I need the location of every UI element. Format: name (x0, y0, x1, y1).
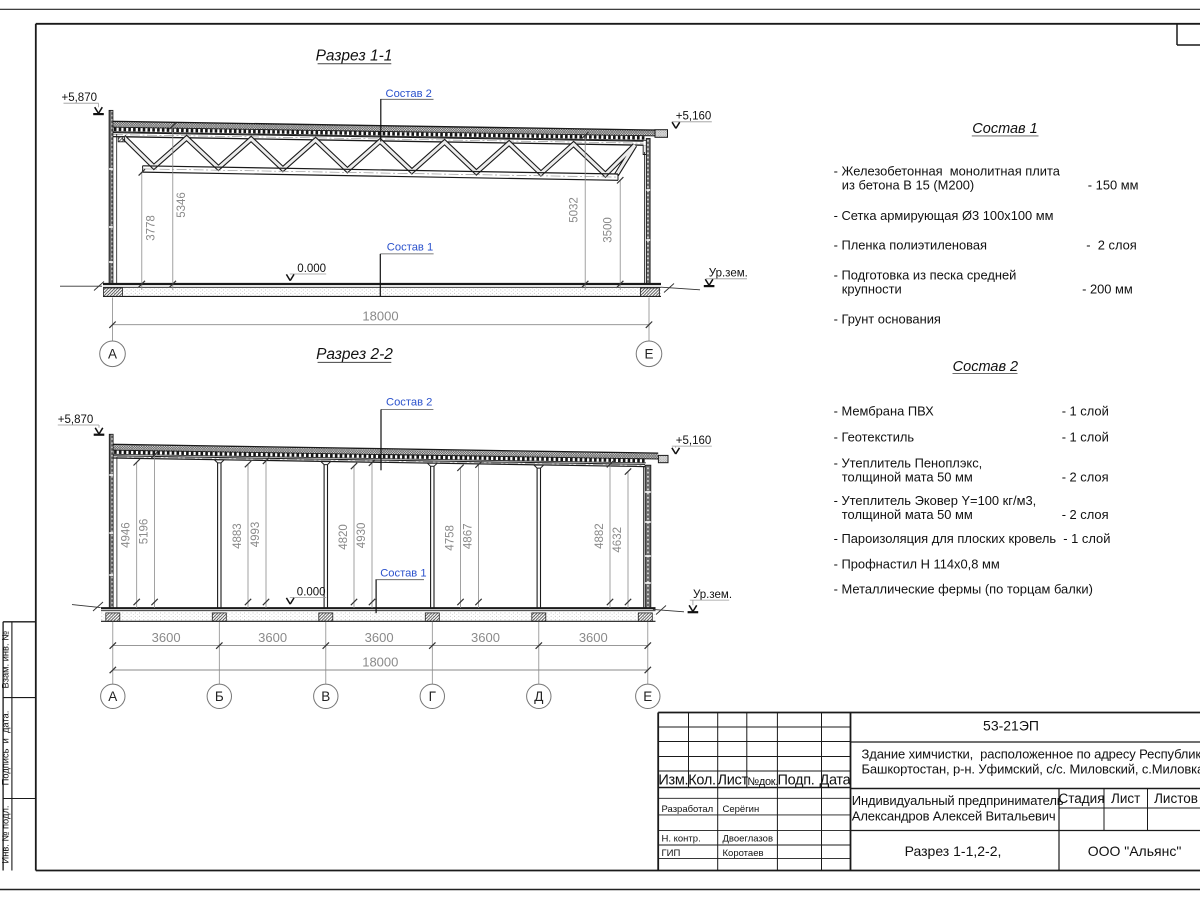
svg-text:Серёгин: Серёгин (723, 804, 760, 815)
svg-text:- 2 слоя: - 2 слоя (1086, 238, 1136, 253)
svg-text:3600: 3600 (258, 630, 287, 645)
svg-text:№док.: №док. (747, 776, 778, 788)
svg-text:Б: Б (215, 689, 224, 704)
svg-text:- Утеплитель Пеноплэкс,: - Утеплитель Пеноплэкс, (834, 456, 983, 471)
svg-text:+5,870: +5,870 (58, 414, 94, 426)
svg-text:толщиной мата 50 мм: толщиной мата 50 мм (842, 469, 973, 484)
svg-text:3600: 3600 (579, 630, 608, 645)
svg-text:Разрез 1-1,2-2,: Разрез 1-1,2-2, (905, 843, 1002, 859)
svg-text:- Грунт основания: - Грунт основания (834, 311, 941, 326)
svg-text:Взам. инв. №: Взам. инв. № (0, 631, 10, 689)
svg-text:4946: 4946 (121, 522, 133, 548)
svg-text:4882: 4882 (594, 523, 606, 549)
svg-text:+5,160: +5,160 (676, 435, 712, 447)
svg-text:- 2 слоя: - 2 слоя (1062, 469, 1109, 484)
svg-text:Александров Алексей Витальевич: Александров Алексей Витальевич (852, 808, 1056, 823)
svg-text:4993: 4993 (250, 522, 262, 548)
svg-text:из бетона В 15 (М200): из бетона В 15 (М200) (842, 178, 974, 193)
svg-text:Здание химчистки, расположенн: Здание химчистки, расположенное по адрес… (862, 746, 1200, 761)
svg-text:+5,870: +5,870 (62, 92, 98, 104)
svg-text:18000: 18000 (362, 309, 398, 324)
svg-text:Е: Е (643, 689, 652, 704)
svg-text:Разрез 1-1: Разрез 1-1 (316, 48, 393, 65)
svg-text:Лист: Лист (718, 772, 749, 788)
svg-text:Изм.: Изм. (658, 772, 688, 788)
svg-text:Разрез 2-2: Разрез 2-2 (316, 346, 393, 363)
svg-text:Индивидуальный предприниматель: Индивидуальный предприниматель (852, 793, 1064, 808)
svg-text:Д: Д (534, 689, 543, 704)
svg-text:Листов: Листов (1154, 791, 1198, 806)
svg-text:Состав 2: Состав 2 (386, 397, 432, 409)
svg-text:толщиной мата 50 мм: толщиной мата 50 мм (842, 507, 973, 522)
svg-text:4758: 4758 (445, 525, 457, 551)
svg-text:А: А (108, 347, 117, 362)
svg-text:Состав 1: Состав 1 (972, 121, 1037, 137)
svg-text:ООО "Альянс": ООО "Альянс" (1088, 843, 1182, 859)
svg-text:Е: Е (644, 347, 653, 362)
svg-text:Подп.: Подп. (777, 772, 814, 788)
svg-text:- Пароизоляция для плоских кро: - Пароизоляция для плоских кровель (834, 531, 1057, 546)
svg-text:- Железобетонная монолитная п: - Железобетонная монолитная плита (834, 164, 1061, 179)
svg-text:В: В (321, 689, 330, 704)
svg-text:Башкортостан, р-н. Уфимский, с: Башкортостан, р-н. Уфимский, с/с. Миловс… (862, 762, 1200, 777)
svg-text:Разработал: Разработал (662, 804, 714, 815)
svg-text:крупности: крупности (842, 282, 902, 297)
svg-text:- Утеплитель Эковер Y=100 кг/м: - Утеплитель Эковер Y=100 кг/м3, (834, 493, 1037, 508)
svg-text:Состав 1: Состав 1 (387, 241, 433, 253)
svg-text:0.000: 0.000 (297, 263, 326, 275)
svg-text:Дата: Дата (819, 772, 851, 788)
svg-text:- Геотекстиль: - Геотекстиль (834, 429, 915, 444)
svg-text:- Профнастил Н 114х0,8 мм: - Профнастил Н 114х0,8 мм (834, 556, 1000, 571)
svg-text:4867: 4867 (463, 524, 475, 550)
svg-text:18000: 18000 (362, 654, 398, 669)
svg-text:3600: 3600 (471, 630, 500, 645)
svg-text:- 1 слой: - 1 слой (1062, 429, 1109, 444)
svg-text:Ур.зем.: Ур.зем. (693, 589, 732, 601)
svg-text:А: А (108, 689, 117, 704)
svg-text:5196: 5196 (139, 519, 151, 545)
svg-text:Ур.зем.: Ур.зем. (709, 268, 748, 280)
svg-text:5346: 5346 (176, 192, 188, 218)
svg-text:- Мембрана ПВХ: - Мембрана ПВХ (834, 404, 935, 419)
svg-text:0.000: 0.000 (297, 586, 326, 598)
svg-text:+5,160: +5,160 (676, 111, 712, 123)
svg-text:- Пленка полиэтиленовая: - Пленка полиэтиленовая (834, 238, 987, 253)
svg-text:- 2 слоя: - 2 слоя (1062, 507, 1109, 522)
svg-text:- 1 слой: - 1 слой (1062, 404, 1109, 419)
svg-text:- 200 мм: - 200 мм (1082, 282, 1133, 297)
svg-text:- Металлические фермы (по торц: - Металлические фермы (по торцам балки) (834, 582, 1093, 597)
svg-text:5032: 5032 (569, 197, 581, 223)
svg-text:53-21ЭП: 53-21ЭП (983, 717, 1039, 733)
svg-text:Коротаев: Коротаев (723, 848, 764, 859)
svg-text:ГИП: ГИП (662, 848, 681, 859)
svg-text:4632: 4632 (612, 527, 624, 553)
svg-text:- Сетка армирующая Ø3 100х100: - Сетка армирующая Ø3 100х100 мм (834, 208, 1054, 223)
svg-text:Состав 1: Состав 1 (380, 567, 426, 579)
svg-text:Кол.: Кол. (688, 772, 715, 788)
svg-text:Стадия: Стадия (1058, 791, 1104, 806)
svg-text:3778: 3778 (146, 215, 158, 241)
svg-text:Лист: Лист (1111, 791, 1140, 806)
svg-text:4883: 4883 (232, 523, 244, 549)
svg-text:Подпись и дата.: Подпись и дата. (0, 711, 10, 786)
svg-text:Г: Г (429, 689, 437, 704)
svg-text:Двоеглазов: Двоеглазов (723, 834, 774, 845)
svg-text:Состав 2: Состав 2 (386, 88, 432, 100)
svg-text:Инв. № подл.: Инв. № подл. (0, 806, 10, 864)
svg-text:4930: 4930 (356, 523, 368, 549)
svg-text:3600: 3600 (365, 630, 394, 645)
svg-text:- 1 слой: - 1 слой (1063, 531, 1110, 546)
svg-text:- Подготовка из песка средней: - Подготовка из песка средней (834, 268, 1017, 283)
svg-text:- 150 мм: - 150 мм (1088, 178, 1139, 193)
svg-text:Н. контр.: Н. контр. (662, 834, 701, 845)
svg-text:Состав 2: Состав 2 (953, 359, 1018, 375)
svg-text:4820: 4820 (338, 524, 350, 550)
svg-text:3600: 3600 (152, 630, 181, 645)
svg-text:3500: 3500 (603, 217, 615, 243)
